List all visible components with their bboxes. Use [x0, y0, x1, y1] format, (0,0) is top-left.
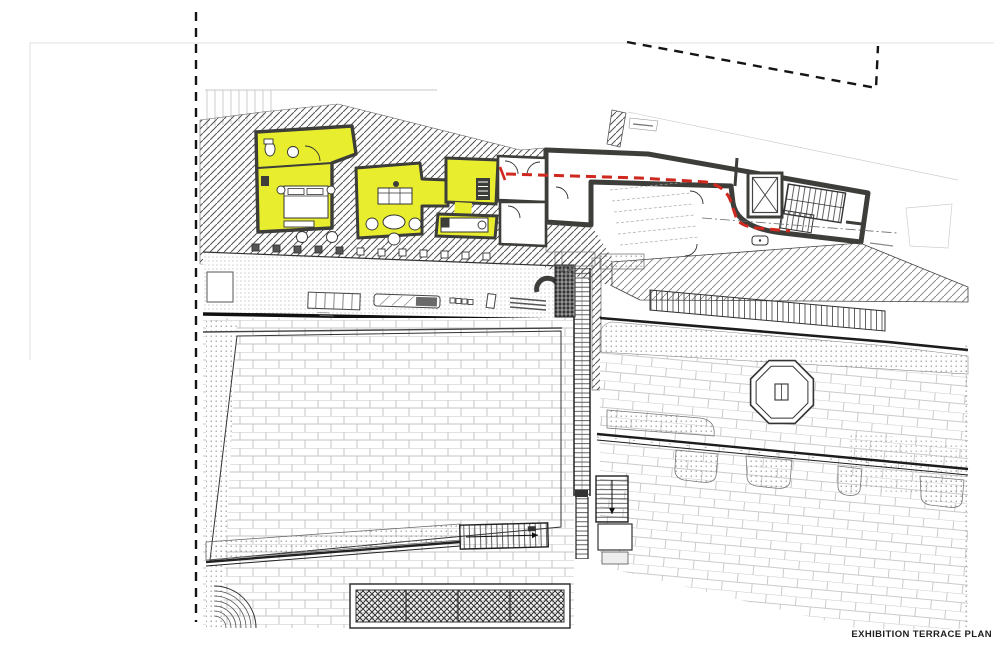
exhibition-terrace-plan-drawing: EXHIBITION TERRACE PLAN	[0, 0, 1000, 667]
strip-landing	[207, 272, 233, 302]
bed	[277, 186, 335, 218]
dashed-stair-lines	[610, 182, 698, 245]
plan-sheet: EXHIBITION TERRACE PLAN	[0, 0, 1000, 667]
right-edge-strip	[962, 345, 970, 629]
skylight-grid	[350, 584, 570, 628]
left-plaza	[203, 318, 574, 628]
octagonal-fountain	[751, 361, 814, 424]
right-plaza	[545, 222, 970, 629]
exhibit-object-long-bench	[374, 294, 440, 308]
plan-title: EXHIBITION TERRACE PLAN	[851, 629, 992, 640]
boundary-top-right	[627, 42, 878, 88]
shelf	[476, 178, 490, 200]
plaza-stairs	[460, 523, 549, 549]
room-gallery	[446, 158, 498, 204]
exhibit-object-panel	[486, 294, 496, 309]
link-rooms	[498, 156, 546, 246]
elevator	[748, 173, 782, 217]
micro-annotation	[607, 110, 658, 147]
